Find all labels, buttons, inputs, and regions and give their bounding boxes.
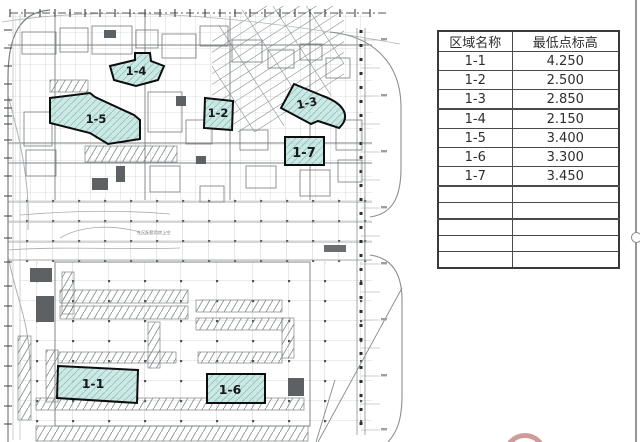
elevation-cell: 2.850 bbox=[512, 90, 619, 110]
table-empty-cell bbox=[438, 203, 512, 220]
area-name-cell: 1-4 bbox=[438, 109, 512, 129]
table-empty-cell bbox=[438, 186, 512, 203]
elevation-cell: 3.400 bbox=[512, 129, 619, 148]
zone-label-1-7: 1-7 bbox=[292, 146, 316, 161]
table-empty-cell bbox=[512, 252, 619, 269]
sheet-frame-line bbox=[635, 0, 637, 442]
table-empty-row bbox=[438, 186, 619, 203]
area-name-cell: 1-2 bbox=[438, 71, 512, 90]
table-empty-cell bbox=[512, 186, 619, 203]
table-header-row: 区域名称 最低点标高 bbox=[438, 31, 619, 52]
elevation-cell: 2.500 bbox=[512, 71, 619, 90]
table-empty-row bbox=[438, 252, 619, 269]
table-empty-row bbox=[438, 203, 619, 220]
elevation-cell: 2.150 bbox=[512, 109, 619, 129]
table-empty-cell bbox=[512, 219, 619, 236]
zone-label-1-1: 1-1 bbox=[82, 376, 105, 391]
table-row: 1-2 2.500 bbox=[438, 71, 619, 90]
site-plan: 社区配套用房上空 1-4 1-5 1-2 1-3 1-7 1-1 1-6 bbox=[0, 0, 432, 442]
table-empty-row bbox=[438, 219, 619, 236]
elevation-cell: 4.250 bbox=[512, 52, 619, 71]
area-name-cell: 1-3 bbox=[438, 90, 512, 110]
table-row: 1-6 3.300 bbox=[438, 148, 619, 167]
header-area-name: 区域名称 bbox=[438, 31, 512, 52]
watermark-stamp-arc bbox=[504, 433, 546, 442]
table-empty-cell bbox=[512, 203, 619, 220]
zone-label-1-6: 1-6 bbox=[219, 382, 242, 397]
elevation-table: 区域名称 最低点标高 1-1 4.250 1-2 2.500 1-3 2.850… bbox=[437, 30, 620, 269]
plan-tiny-note: 社区配套用房上空 bbox=[137, 229, 171, 236]
table-row: 1-5 3.400 bbox=[438, 129, 619, 148]
table-empty-row bbox=[438, 236, 619, 252]
grid-field-upper bbox=[8, 14, 372, 427]
header-lowest-elevation: 最低点标高 bbox=[512, 31, 619, 52]
screenshot-root: 社区配套用房上空 1-4 1-5 1-2 1-3 1-7 1-1 1-6 区域名… bbox=[0, 0, 640, 442]
zone-label-1-5: 1-5 bbox=[86, 112, 107, 126]
table-row: 1-4 2.150 bbox=[438, 109, 619, 129]
area-name-cell: 1-6 bbox=[438, 148, 512, 167]
area-name-cell: 1-7 bbox=[438, 167, 512, 187]
table-row: 1-1 4.250 bbox=[438, 52, 619, 71]
elevation-cell: 3.300 bbox=[512, 148, 619, 167]
table-empty-cell bbox=[512, 236, 619, 252]
area-name-cell: 1-5 bbox=[438, 129, 512, 148]
zone-label-1-4: 1-4 bbox=[126, 64, 147, 78]
table-row: 1-7 3.450 bbox=[438, 167, 619, 187]
elevation-cell: 3.450 bbox=[512, 167, 619, 187]
table-empty-cell bbox=[438, 236, 512, 252]
zone-label-1-2: 1-2 bbox=[208, 106, 229, 120]
table-empty-cell bbox=[438, 252, 512, 269]
area-name-cell: 1-1 bbox=[438, 52, 512, 71]
table-row: 1-3 2.850 bbox=[438, 90, 619, 110]
frame-node-circle bbox=[631, 232, 640, 243]
table-empty-cell bbox=[438, 219, 512, 236]
